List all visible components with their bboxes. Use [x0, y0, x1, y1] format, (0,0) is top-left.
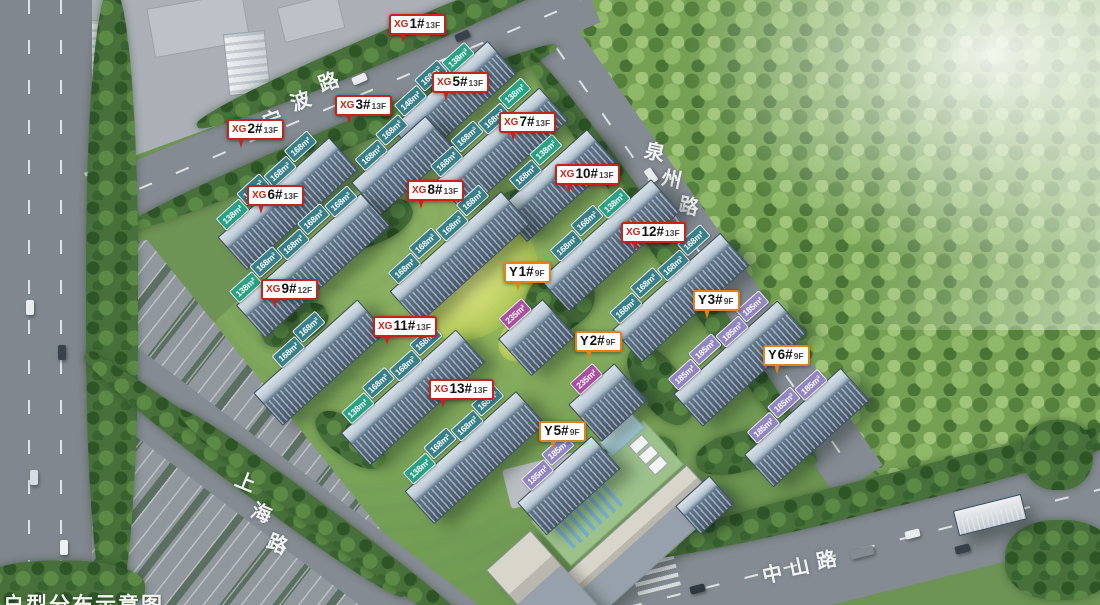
label-prefix: Y: [544, 423, 553, 438]
label-number: 11#: [393, 318, 415, 333]
label-xg1[interactable]: XG1#13F: [389, 14, 446, 35]
label-prefix: Y: [698, 292, 707, 307]
trees: [86, 0, 138, 605]
label-xg10[interactable]: XG10#13F: [555, 164, 620, 185]
label-prefix: XG: [504, 117, 518, 128]
car: [58, 345, 66, 360]
label-xg11[interactable]: XG11#13F: [373, 316, 437, 337]
label-floor: 9F: [535, 268, 545, 278]
label-y6[interactable]: Y6#9F: [763, 345, 810, 366]
label-floor: 9F: [570, 427, 580, 437]
car: [60, 540, 68, 555]
label-xg12[interactable]: XG12#13F: [621, 222, 686, 243]
label-prefix: Y: [768, 347, 777, 362]
label-number: 6#: [267, 187, 282, 202]
label-prefix: XG: [378, 321, 392, 332]
label-number: 3#: [708, 292, 723, 307]
label-floor: 9F: [606, 337, 616, 347]
label-floor: 13F: [468, 78, 483, 88]
label-floor: 13F: [443, 186, 458, 196]
label-y1[interactable]: Y1#9F: [504, 262, 551, 283]
label-number: 9#: [281, 281, 296, 296]
road-left: [0, 0, 92, 605]
label-xg2[interactable]: XG2#13F: [227, 119, 284, 140]
label-number: 3#: [355, 97, 370, 112]
label-prefix: XG: [340, 100, 354, 111]
label-y5[interactable]: Y5#9F: [539, 421, 586, 442]
label-floor: 9F: [724, 296, 734, 306]
label-prefix: XG: [252, 190, 266, 201]
label-number: 1#: [409, 16, 424, 31]
label-floor: 12F: [297, 285, 312, 295]
label-prefix: XG: [434, 384, 448, 395]
label-number: 2#: [247, 121, 262, 136]
label-xg6[interactable]: XG6#13F: [247, 185, 304, 206]
label-xg8[interactable]: XG8#13F: [407, 180, 464, 201]
label-y2[interactable]: Y2#9F: [575, 331, 622, 352]
label-prefix: XG: [437, 77, 451, 88]
label-number: 6#: [778, 347, 793, 362]
label-floor: 13F: [263, 125, 278, 135]
label-floor: 9F: [794, 351, 804, 361]
label-floor: 13F: [283, 191, 298, 201]
car: [26, 300, 34, 315]
label-xg9[interactable]: XG9#12F: [261, 279, 318, 300]
label-floor: 13F: [425, 20, 440, 30]
label-number: 2#: [590, 333, 605, 348]
car: [30, 470, 38, 485]
label-number: 7#: [519, 114, 534, 129]
label-number: 1#: [519, 264, 534, 279]
label-number: 12#: [641, 224, 664, 239]
label-xg3[interactable]: XG3#13F: [335, 95, 392, 116]
label-floor: 13F: [665, 228, 680, 238]
trees: [1005, 520, 1100, 600]
label-number: 5#: [554, 423, 569, 438]
caption-partial: 户型分布示意图: [3, 589, 164, 605]
label-number: 10#: [575, 166, 598, 181]
label-prefix: XG: [266, 284, 280, 295]
label-prefix: XG: [412, 185, 426, 196]
label-prefix: XG: [394, 19, 408, 30]
site-plan-rendering: 148m² 168m² 138m² 138m² 168m² 168m² 168m…: [0, 0, 1100, 605]
label-number: 5#: [452, 74, 467, 89]
label-prefix: Y: [509, 264, 518, 279]
label-y3[interactable]: Y3#9F: [693, 290, 740, 311]
label-xg5[interactable]: XG5#13F: [432, 72, 489, 93]
label-floor: 13F: [416, 322, 431, 332]
label-xg7[interactable]: XG7#13F: [499, 112, 556, 133]
label-floor: 13F: [371, 101, 386, 111]
label-prefix: Y: [580, 333, 589, 348]
label-number: 8#: [427, 182, 442, 197]
label-prefix: XG: [232, 124, 246, 135]
trees: [1023, 420, 1093, 490]
label-floor: 13F: [535, 118, 550, 128]
label-number: 13#: [449, 381, 472, 396]
label-prefix: XG: [560, 169, 574, 180]
label-prefix: XG: [626, 227, 640, 238]
label-floor: 13F: [599, 170, 614, 180]
label-xg13[interactable]: XG13#13F: [429, 379, 494, 400]
label-floor: 13F: [473, 385, 488, 395]
